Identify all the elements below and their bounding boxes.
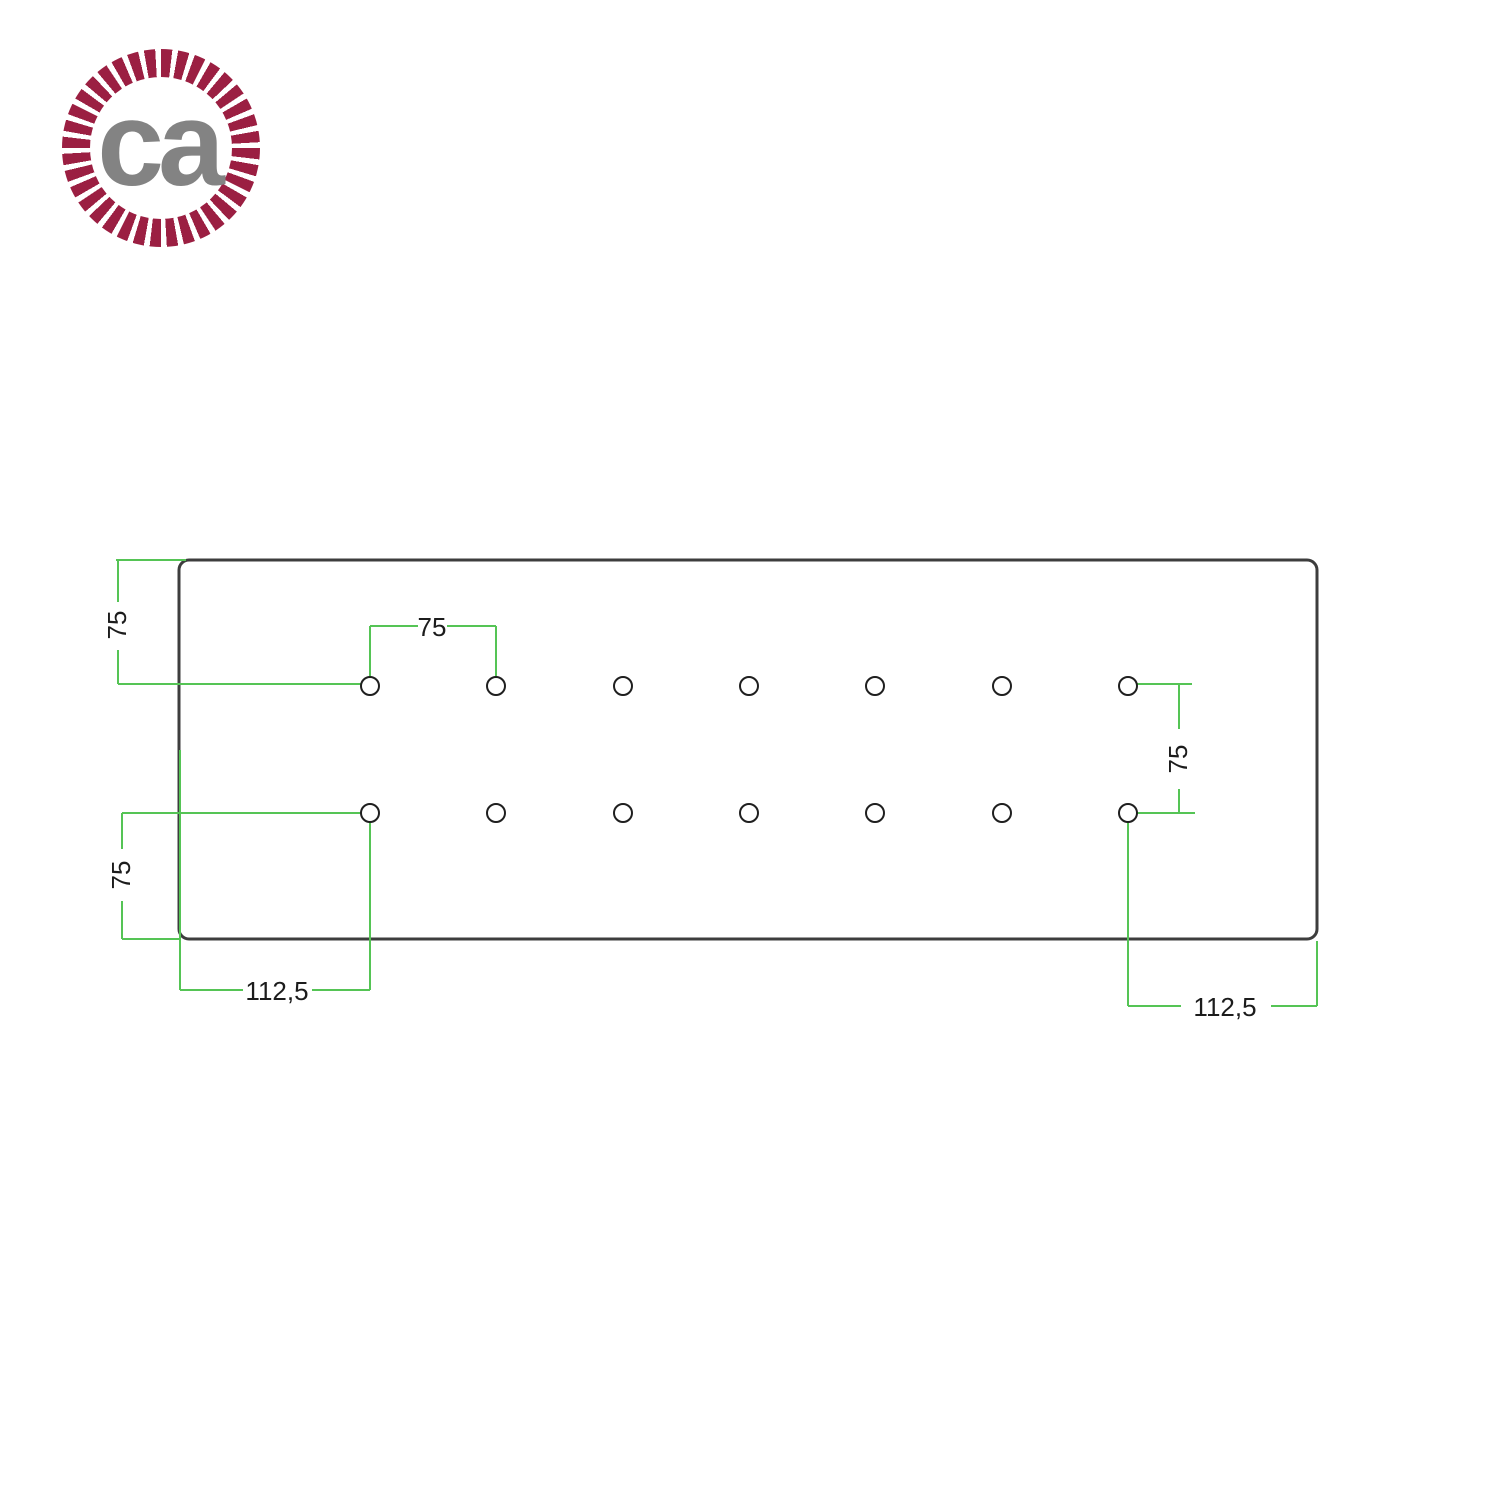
hole: [993, 677, 1011, 695]
hole: [866, 804, 884, 822]
plate-outline: [179, 560, 1317, 939]
spec-sheet-page: ca 75757575112,5112,5: [0, 0, 1500, 1500]
hole: [361, 804, 379, 822]
hole: [1119, 677, 1137, 695]
dimension-label: 75: [1163, 745, 1193, 774]
hole: [866, 677, 884, 695]
hole: [614, 677, 632, 695]
dimension-label: 75: [102, 611, 132, 640]
technical-drawing: 75757575112,5112,5: [0, 0, 1500, 1500]
dimension-label: 112,5: [1193, 992, 1256, 1022]
hole: [487, 804, 505, 822]
dimension-label: 75: [106, 861, 136, 890]
hole: [1119, 804, 1137, 822]
hole: [487, 677, 505, 695]
hole: [740, 677, 758, 695]
dimension-label: 75: [418, 612, 447, 642]
hole: [993, 804, 1011, 822]
dimension-label: 112,5: [245, 976, 308, 1006]
hole: [361, 677, 379, 695]
hole: [740, 804, 758, 822]
hole: [614, 804, 632, 822]
